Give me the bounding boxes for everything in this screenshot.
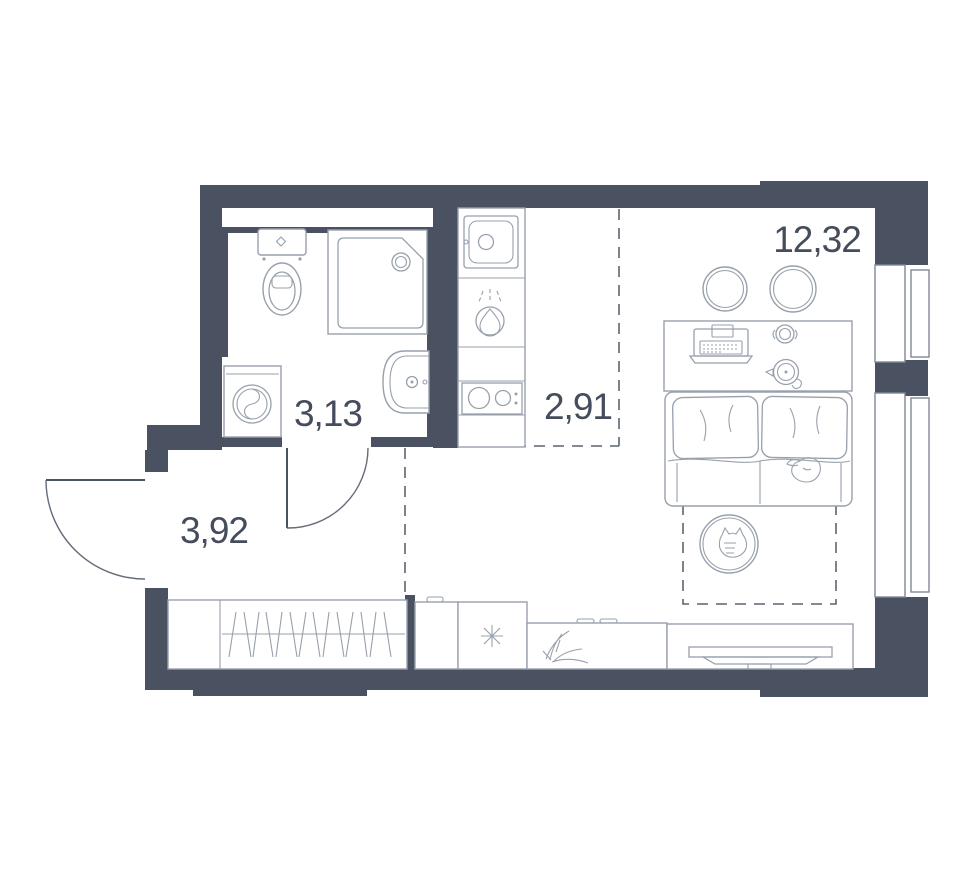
- base-cabinet-icon: [415, 597, 458, 669]
- asterisk-icon: [481, 625, 503, 647]
- washing-machine-icon: [224, 366, 281, 437]
- entry-door-icon: [46, 480, 145, 579]
- stool-icon: [770, 266, 816, 312]
- wardrobe-icon: [168, 600, 407, 669]
- tv-stand-icon: [667, 624, 853, 669]
- window-icon: [875, 393, 929, 597]
- bathroom-area-label: 3,13: [294, 393, 362, 434]
- sideboard-icon: [527, 619, 667, 669]
- window-icon: [875, 265, 929, 362]
- kitchen-area-label: 2,91: [544, 386, 612, 427]
- floor-plan-canvas: 3,13 3,92 2,91 12,32: [0, 0, 973, 880]
- stool-icon: [703, 267, 747, 311]
- fridge-icon: [458, 602, 527, 669]
- floor-plan: 3,13 3,92 2,91 12,32: [0, 0, 973, 880]
- shower-cabin-icon: [328, 230, 427, 334]
- toilet-icon: [258, 229, 306, 315]
- desk-icon: [664, 321, 852, 391]
- hallway-area-label: 3,92: [180, 510, 248, 551]
- round-rug-icon: [700, 515, 758, 573]
- kitchen-counter: [458, 208, 525, 447]
- living-room-area-label: 12,32: [773, 219, 861, 260]
- bathroom-door-icon: [287, 448, 368, 528]
- bathroom-sink-icon: [383, 351, 429, 413]
- windows: [875, 265, 929, 597]
- bed-icon: [665, 392, 852, 506]
